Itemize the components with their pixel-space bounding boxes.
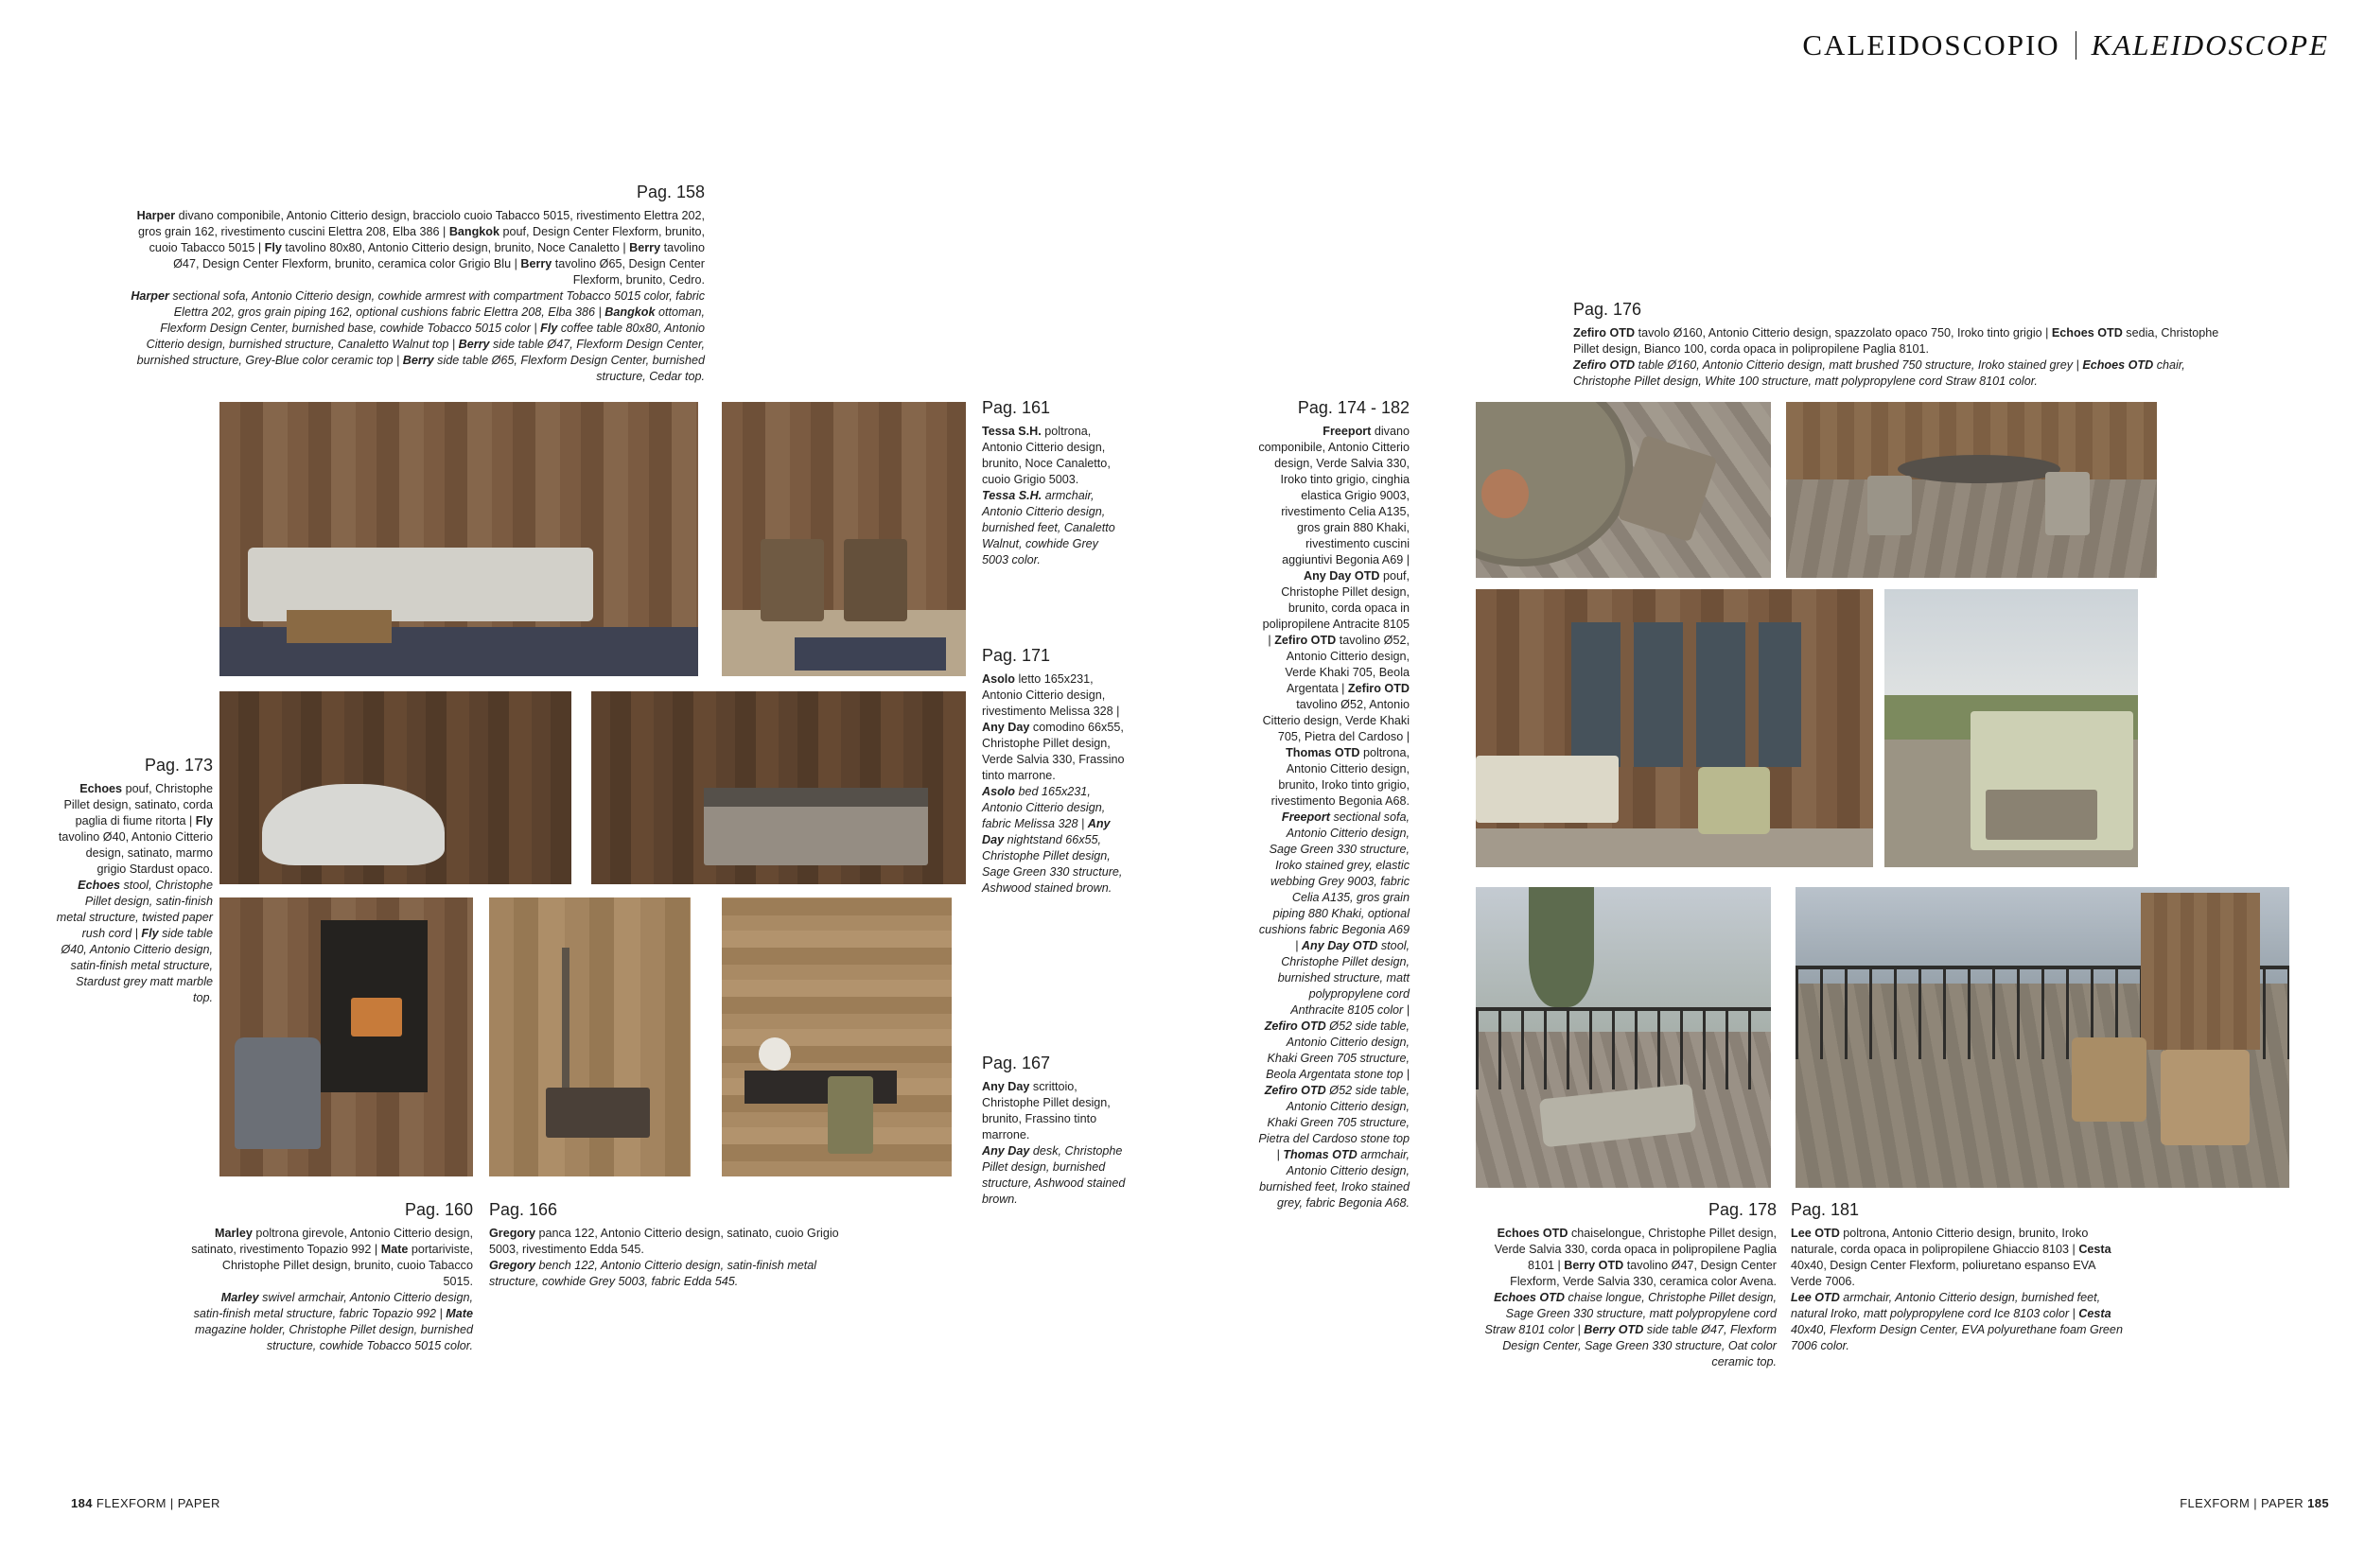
photo-decor-shape xyxy=(1481,469,1529,518)
photo-decor-shape xyxy=(745,1071,896,1104)
caption-block-pag-173: Pag. 173 Echoes pouf, Christophe Pillet … xyxy=(54,755,213,1006)
photo-decor-shape xyxy=(1884,589,2138,701)
caption-block-pag-158: Pag. 158 Harper divano componibile, Anto… xyxy=(126,182,705,385)
photo-decor-shape xyxy=(287,610,392,643)
photo-decor-shape xyxy=(562,948,570,1088)
caption-text: Gregory panca 122, Antonio Citterio desi… xyxy=(489,1226,856,1290)
photo-decor-shape xyxy=(1898,455,2060,483)
photo-decor-shape xyxy=(1476,756,1619,823)
brand-label-right: FLEXFORM | PAPER xyxy=(2180,1496,2304,1510)
caption-block-pag-171: Pag. 171 Asolo letto 165x231, Antonio Ci… xyxy=(982,645,1126,897)
caption-block-pag-178: Pag. 178 Echoes OTD chaiselongue, Christ… xyxy=(1481,1199,1777,1370)
photo-decor-shape xyxy=(2072,1037,2146,1122)
photo-zefiro-table-echoes-chairs xyxy=(1786,402,2157,578)
photo-terrace-freeport-sofa xyxy=(1476,589,1873,867)
photo-decor-shape xyxy=(1476,828,1873,867)
photo-decor-shape xyxy=(2141,893,2259,1049)
caption-block-pag-176: Pag. 176 Zefiro OTD tavolo Ø160, Antonio… xyxy=(1573,299,2240,390)
photo-decor-shape xyxy=(1571,622,1802,767)
page-ref-label: Pag. 181 xyxy=(1791,1199,2128,1220)
page-ref-label: Pag. 176 xyxy=(1573,299,2240,320)
page-footer-right: FLEXFORM | PAPER 185 xyxy=(2180,1496,2329,1510)
photo-echoes-chaise-balcony xyxy=(1476,887,1771,1188)
page-ref-label: Pag. 167 xyxy=(982,1053,1126,1073)
brand-label-left: FLEXFORM | PAPER xyxy=(96,1496,220,1510)
page-footer-left: 184 FLEXFORM | PAPER xyxy=(71,1496,220,1510)
caption-block-pag-174-182: Pag. 174 - 182 Freeport divano componibi… xyxy=(1258,397,1410,1211)
photo-decor-shape xyxy=(1986,790,2097,840)
page-ref-label: Pag. 160 xyxy=(189,1199,473,1220)
caption-block-pag-181: Pag. 181 Lee OTD poltrona, Antonio Citte… xyxy=(1791,1199,2128,1354)
photo-any-day-desk xyxy=(722,897,952,1176)
section-title-italian: CALEIDOSCOPIO xyxy=(1802,28,2059,62)
caption-block-pag-160: Pag. 160 Marley poltrona girevole, Anton… xyxy=(189,1199,473,1354)
photo-decor-shape xyxy=(1476,1007,1771,1089)
photo-decor-shape xyxy=(1867,476,1912,535)
photo-freeport-sofa-storage-back xyxy=(1884,589,2138,867)
photo-decor-shape xyxy=(795,637,946,671)
caption-text: Marley poltrona girevole, Antonio Citter… xyxy=(189,1226,473,1354)
caption-block-pag-166: Pag. 166 Gregory panca 122, Antonio Citt… xyxy=(489,1199,856,1290)
photo-decor-shape xyxy=(235,1037,321,1149)
photo-decor-shape xyxy=(1529,887,1594,1007)
photo-decor-shape xyxy=(2161,1050,2250,1146)
page-ref-label: Pag. 171 xyxy=(982,645,1126,666)
caption-text: Echoes OTD chaiselongue, Christophe Pill… xyxy=(1481,1226,1777,1370)
section-title-english: KALEIDOSCOPE xyxy=(2092,28,2329,62)
section-title: CALEIDOSCOPIO KALEIDOSCOPE xyxy=(1802,28,2329,62)
catalog-spread: CALEIDOSCOPIO KALEIDOSCOPE Pag. 158 Harp… xyxy=(0,0,2365,1568)
photo-decor-shape xyxy=(546,1088,651,1138)
page-ref-label: Pag. 161 xyxy=(982,397,1126,418)
photo-decor-shape xyxy=(2045,472,2090,535)
photo-decor-shape xyxy=(759,1037,791,1071)
photo-decor-shape xyxy=(1618,434,1718,542)
photo-decor-shape xyxy=(844,539,907,621)
photo-marley-armchair-fireplace xyxy=(219,897,473,1176)
caption-text: Tessa S.H. poltrona, Antonio Citterio de… xyxy=(982,424,1126,568)
caption-text: Freeport divano componibile, Antonio Cit… xyxy=(1258,424,1410,1211)
caption-block-pag-167: Pag. 167 Any Day scrittoio, Christophe P… xyxy=(982,1053,1126,1208)
photo-zefiro-table-top-view xyxy=(1476,402,1771,578)
page-ref-label: Pag. 174 - 182 xyxy=(1258,397,1410,418)
photo-asolo-bed xyxy=(591,691,966,884)
photo-lee-armchairs-balcony xyxy=(1796,887,2289,1188)
caption-text: Zefiro OTD tavolo Ø160, Antonio Citterio… xyxy=(1573,325,2240,390)
page-number-right: 185 xyxy=(2307,1496,2329,1510)
caption-text: Any Day scrittoio, Christophe Pillet des… xyxy=(982,1079,1126,1208)
page-number-left: 184 xyxy=(71,1496,93,1510)
photo-decor-shape xyxy=(704,788,929,807)
photo-decor-shape xyxy=(761,539,824,621)
page-ref-label: Pag. 173 xyxy=(54,755,213,775)
photo-gregory-bench xyxy=(489,897,691,1176)
caption-text: Harper divano componibile, Antonio Citte… xyxy=(126,208,705,385)
photo-decor-shape xyxy=(1698,767,1770,834)
photo-bathtub-echoes-stool xyxy=(219,691,571,884)
photo-decor-shape xyxy=(262,784,445,865)
page-ref-label: Pag. 178 xyxy=(1481,1199,1777,1220)
caption-block-pag-161: Pag. 161 Tessa S.H. poltrona, Antonio Ci… xyxy=(982,397,1126,568)
caption-text: Lee OTD poltrona, Antonio Citterio desig… xyxy=(1791,1226,2128,1354)
photo-living-room-harper-sofa xyxy=(219,402,698,676)
photo-tessa-armchairs xyxy=(722,402,966,676)
photo-decor-shape xyxy=(351,998,402,1037)
page-ref-label: Pag. 158 xyxy=(126,182,705,202)
caption-text: Echoes pouf, Christophe Pillet design, s… xyxy=(54,781,213,1006)
page-ref-label: Pag. 166 xyxy=(489,1199,856,1220)
title-divider xyxy=(2076,31,2076,60)
caption-text: Asolo letto 165x231, Antonio Citterio de… xyxy=(982,671,1126,897)
photo-decor-shape xyxy=(828,1076,874,1155)
